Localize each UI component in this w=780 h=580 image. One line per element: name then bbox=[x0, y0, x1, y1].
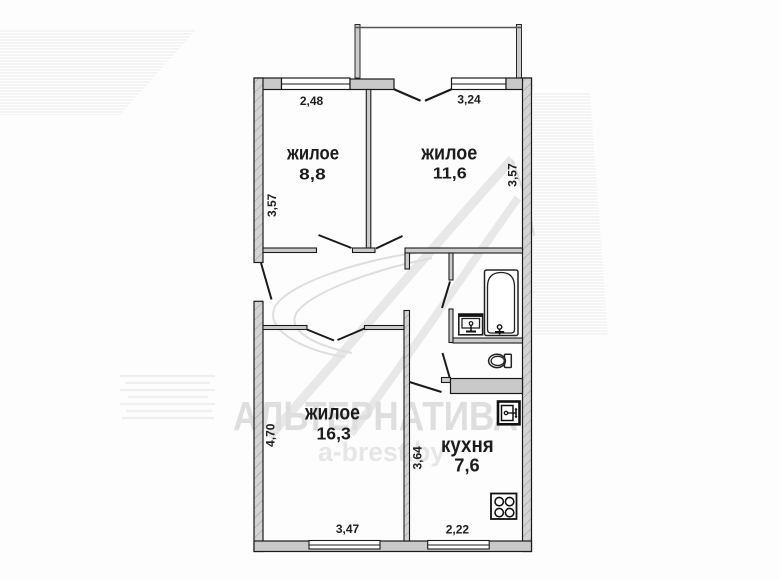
svg-text:кухня: кухня bbox=[441, 434, 494, 457]
svg-text:3,57: 3,57 bbox=[265, 193, 279, 217]
svg-text:2,48: 2,48 bbox=[300, 94, 324, 108]
svg-text:жилое: жилое bbox=[420, 143, 477, 165]
svg-text:3,64: 3,64 bbox=[410, 446, 424, 470]
svg-text:жилое: жилое bbox=[304, 402, 360, 425]
svg-text:3,47: 3,47 bbox=[336, 522, 360, 536]
svg-text:4,70: 4,70 bbox=[264, 423, 278, 447]
svg-text:3,24: 3,24 bbox=[457, 92, 481, 106]
svg-text:3,57: 3,57 bbox=[506, 163, 520, 187]
svg-text:2,22: 2,22 bbox=[446, 523, 470, 537]
svg-text:11,6: 11,6 bbox=[433, 166, 467, 183]
svg-text:8,8: 8,8 bbox=[299, 167, 326, 184]
svg-text:жилое: жилое bbox=[286, 144, 339, 165]
svg-text:7,6: 7,6 bbox=[454, 455, 479, 475]
svg-text:16,3: 16,3 bbox=[317, 423, 352, 443]
